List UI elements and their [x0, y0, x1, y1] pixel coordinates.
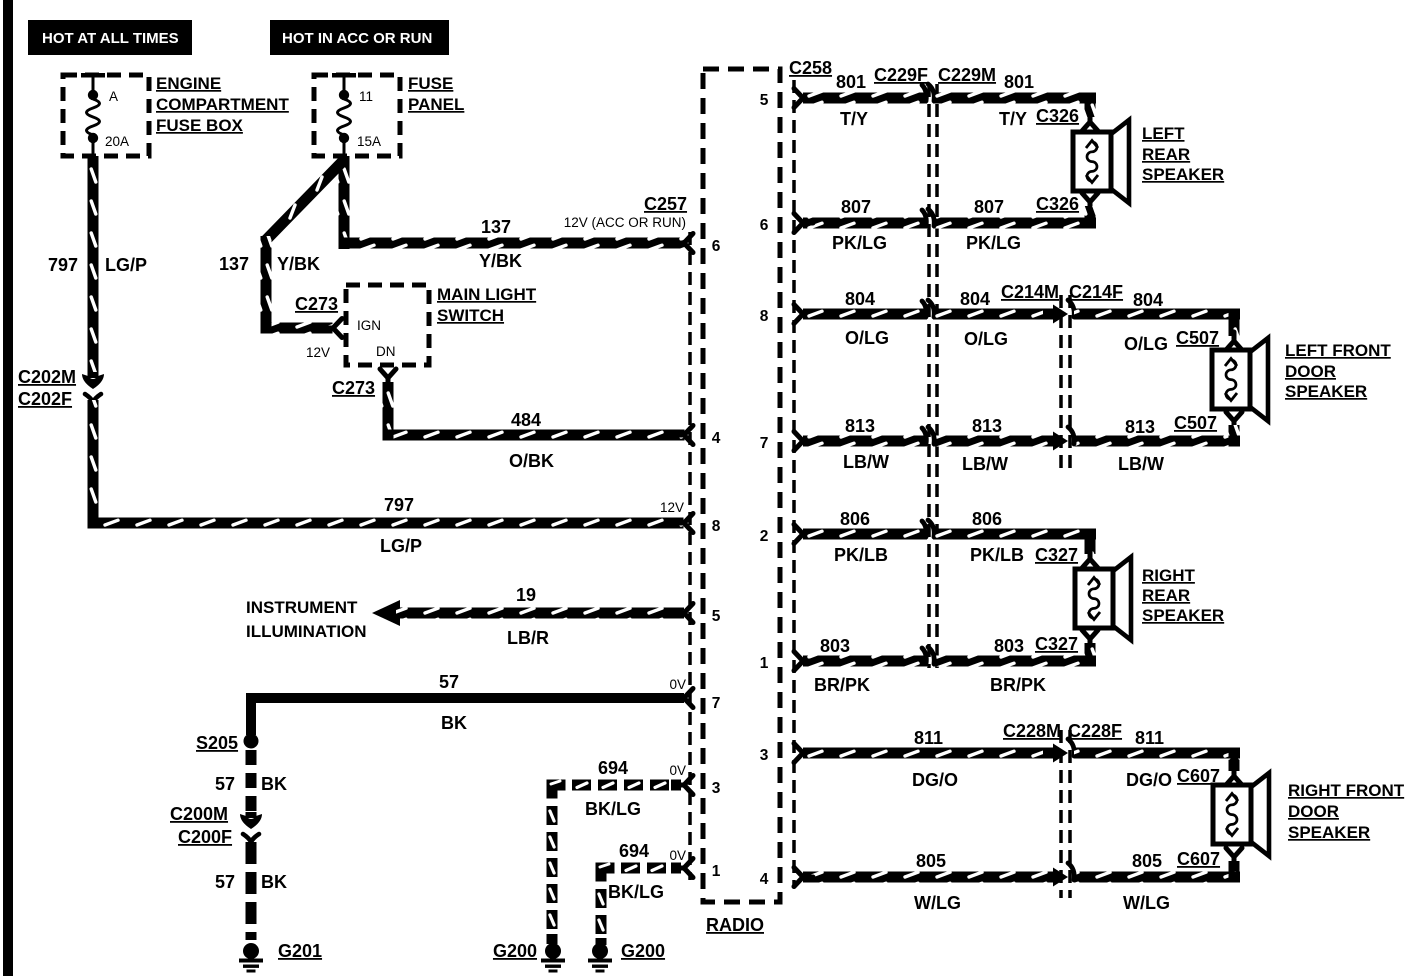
- svg-text:Y/BK: Y/BK: [277, 254, 320, 274]
- svg-text:57: 57: [215, 872, 235, 892]
- svg-text:O/BK: O/BK: [509, 451, 554, 471]
- svg-text:DG/O: DG/O: [912, 770, 958, 790]
- svg-text:PK/LB: PK/LB: [970, 545, 1024, 565]
- svg-text:0V: 0V: [669, 677, 686, 692]
- svg-text:C507: C507: [1176, 328, 1219, 348]
- svg-text:5: 5: [712, 608, 721, 625]
- svg-text:20A: 20A: [105, 134, 129, 149]
- svg-text:0V: 0V: [669, 848, 686, 863]
- svg-text:C214M: C214M: [1001, 282, 1059, 302]
- svg-text:ILLUMINATION: ILLUMINATION: [246, 622, 367, 641]
- svg-text:PK/LG: PK/LG: [966, 233, 1021, 253]
- svg-text:805: 805: [1132, 851, 1162, 871]
- svg-text:REAR: REAR: [1142, 586, 1190, 605]
- svg-text:803: 803: [994, 636, 1024, 656]
- svg-text:G200: G200: [621, 941, 665, 961]
- svg-text:8: 8: [760, 308, 769, 325]
- svg-text:ENGINE: ENGINE: [156, 74, 221, 93]
- svg-text:C273: C273: [332, 378, 375, 398]
- svg-text:LG/P: LG/P: [380, 536, 422, 556]
- svg-text:797: 797: [48, 255, 78, 275]
- svg-text:807: 807: [974, 197, 1004, 217]
- svg-text:SWITCH: SWITCH: [437, 306, 504, 325]
- svg-text:O/LG: O/LG: [964, 329, 1008, 349]
- svg-text:C273: C273: [295, 294, 338, 314]
- svg-text:C228M: C228M: [1003, 721, 1061, 741]
- svg-text:SPEAKER: SPEAKER: [1288, 823, 1370, 842]
- svg-text:COMPARTMENT: COMPARTMENT: [156, 95, 289, 114]
- svg-text:C326: C326: [1036, 106, 1079, 126]
- svg-text:RIGHT FRONT: RIGHT FRONT: [1288, 781, 1405, 800]
- svg-text:C202M: C202M: [18, 367, 76, 387]
- svg-text:RADIO: RADIO: [706, 915, 764, 935]
- svg-text:813: 813: [972, 416, 1002, 436]
- svg-text:SPEAKER: SPEAKER: [1142, 165, 1224, 184]
- svg-text:4: 4: [712, 430, 721, 447]
- svg-text:C326: C326: [1036, 194, 1079, 214]
- svg-text:O/LG: O/LG: [845, 328, 889, 348]
- svg-text:694: 694: [619, 841, 649, 861]
- svg-text:801: 801: [1004, 72, 1034, 92]
- svg-text:C327: C327: [1035, 545, 1078, 565]
- svg-text:4: 4: [760, 871, 769, 888]
- svg-text:BR/PK: BR/PK: [814, 675, 870, 695]
- svg-text:LEFT FRONT: LEFT FRONT: [1285, 341, 1391, 360]
- svg-text:PANEL: PANEL: [408, 95, 464, 114]
- svg-text:804: 804: [845, 289, 875, 309]
- svg-text:797: 797: [384, 495, 414, 515]
- svg-text:811: 811: [1135, 728, 1164, 748]
- svg-text:137: 137: [219, 254, 249, 274]
- svg-text:HOT IN ACC OR RUN: HOT IN ACC OR RUN: [282, 30, 432, 47]
- svg-text:813: 813: [1125, 417, 1155, 437]
- svg-text:BK: BK: [261, 872, 287, 892]
- svg-text:O/LG: O/LG: [1124, 334, 1168, 354]
- svg-text:C507: C507: [1174, 413, 1217, 433]
- svg-text:INSTRUMENT: INSTRUMENT: [246, 598, 358, 617]
- svg-text:813: 813: [845, 416, 875, 436]
- svg-text:805: 805: [916, 851, 946, 871]
- svg-text:7: 7: [712, 695, 721, 712]
- svg-text:SPEAKER: SPEAKER: [1285, 382, 1367, 401]
- svg-text:SPEAKER: SPEAKER: [1142, 606, 1224, 625]
- svg-text:FUSE BOX: FUSE BOX: [156, 116, 244, 135]
- svg-text:C200M: C200M: [170, 804, 228, 824]
- svg-text:HOT AT ALL TIMES: HOT AT ALL TIMES: [42, 30, 179, 47]
- svg-text:C229M: C229M: [938, 65, 996, 85]
- svg-text:BR/PK: BR/PK: [990, 675, 1046, 695]
- svg-text:C202F: C202F: [18, 389, 72, 409]
- svg-text:REAR: REAR: [1142, 145, 1190, 164]
- svg-text:7: 7: [760, 435, 769, 452]
- svg-text:12V: 12V: [306, 345, 330, 360]
- svg-text:DN: DN: [376, 344, 396, 359]
- svg-text:137: 137: [481, 217, 511, 237]
- svg-text:DOOR: DOOR: [1288, 802, 1339, 821]
- svg-text:G200: G200: [493, 941, 537, 961]
- svg-text:12V (ACC OR RUN): 12V (ACC OR RUN): [564, 215, 686, 230]
- svg-text:57: 57: [215, 774, 235, 794]
- svg-text:PK/LB: PK/LB: [834, 545, 888, 565]
- svg-text:3: 3: [712, 780, 721, 797]
- svg-text:C327: C327: [1035, 634, 1078, 654]
- svg-text:12V: 12V: [660, 500, 684, 515]
- svg-text:57: 57: [439, 672, 459, 692]
- svg-text:FUSE: FUSE: [408, 74, 453, 93]
- svg-text:LB/W: LB/W: [962, 454, 1008, 474]
- svg-text:6: 6: [760, 217, 769, 234]
- svg-text:LG/P: LG/P: [105, 255, 147, 275]
- svg-text:C200F: C200F: [178, 827, 232, 847]
- svg-text:0V: 0V: [669, 763, 686, 778]
- svg-text:BK: BK: [261, 774, 287, 794]
- svg-text:BK/LG: BK/LG: [608, 882, 664, 902]
- svg-text:BK/LG: BK/LG: [585, 799, 641, 819]
- svg-text:RIGHT: RIGHT: [1142, 566, 1196, 585]
- svg-text:MAIN LIGHT: MAIN LIGHT: [437, 285, 537, 304]
- svg-text:C229F: C229F: [874, 65, 928, 85]
- svg-text:DG/O: DG/O: [1126, 770, 1172, 790]
- svg-text:806: 806: [972, 509, 1002, 529]
- svg-text:15A: 15A: [357, 134, 381, 149]
- svg-text:694: 694: [598, 758, 628, 778]
- svg-text:804: 804: [1133, 290, 1163, 310]
- svg-text:G201: G201: [278, 941, 322, 961]
- svg-text:1: 1: [712, 863, 721, 880]
- svg-text:3: 3: [760, 747, 769, 764]
- svg-text:Y/BK: Y/BK: [479, 251, 522, 271]
- svg-text:T/Y: T/Y: [999, 109, 1027, 129]
- svg-text:W/LG: W/LG: [914, 893, 961, 913]
- svg-text:C607: C607: [1177, 849, 1220, 869]
- svg-text:T/Y: T/Y: [840, 109, 868, 129]
- svg-text:803: 803: [820, 636, 850, 656]
- svg-text:C258: C258: [789, 58, 832, 78]
- svg-text:DOOR: DOOR: [1285, 362, 1336, 381]
- svg-text:BK: BK: [441, 713, 467, 733]
- svg-text:484: 484: [511, 410, 541, 430]
- svg-text:LB/R: LB/R: [507, 628, 549, 648]
- svg-text:2: 2: [760, 528, 769, 545]
- svg-text:6: 6: [712, 238, 721, 255]
- svg-text:11: 11: [359, 89, 373, 104]
- svg-text:IGN: IGN: [357, 318, 381, 333]
- svg-text:C214F: C214F: [1069, 282, 1123, 302]
- svg-text:807: 807: [841, 197, 871, 217]
- svg-text:LEFT: LEFT: [1142, 124, 1185, 143]
- svg-text:8: 8: [712, 518, 721, 535]
- svg-text:804: 804: [960, 289, 990, 309]
- svg-text:806: 806: [840, 509, 870, 529]
- svg-text:19: 19: [516, 585, 536, 605]
- svg-text:S205: S205: [196, 733, 238, 753]
- svg-text:W/LG: W/LG: [1123, 893, 1170, 913]
- svg-text:LB/W: LB/W: [843, 452, 889, 472]
- svg-text:1: 1: [760, 655, 769, 672]
- svg-text:C257: C257: [644, 194, 687, 214]
- svg-text:C228F: C228F: [1068, 721, 1122, 741]
- svg-text:PK/LG: PK/LG: [832, 233, 887, 253]
- svg-text:801: 801: [836, 72, 866, 92]
- svg-text:811: 811: [914, 728, 943, 748]
- svg-text:5: 5: [760, 92, 769, 109]
- svg-text:LB/W: LB/W: [1118, 454, 1164, 474]
- svg-text:A: A: [109, 89, 118, 104]
